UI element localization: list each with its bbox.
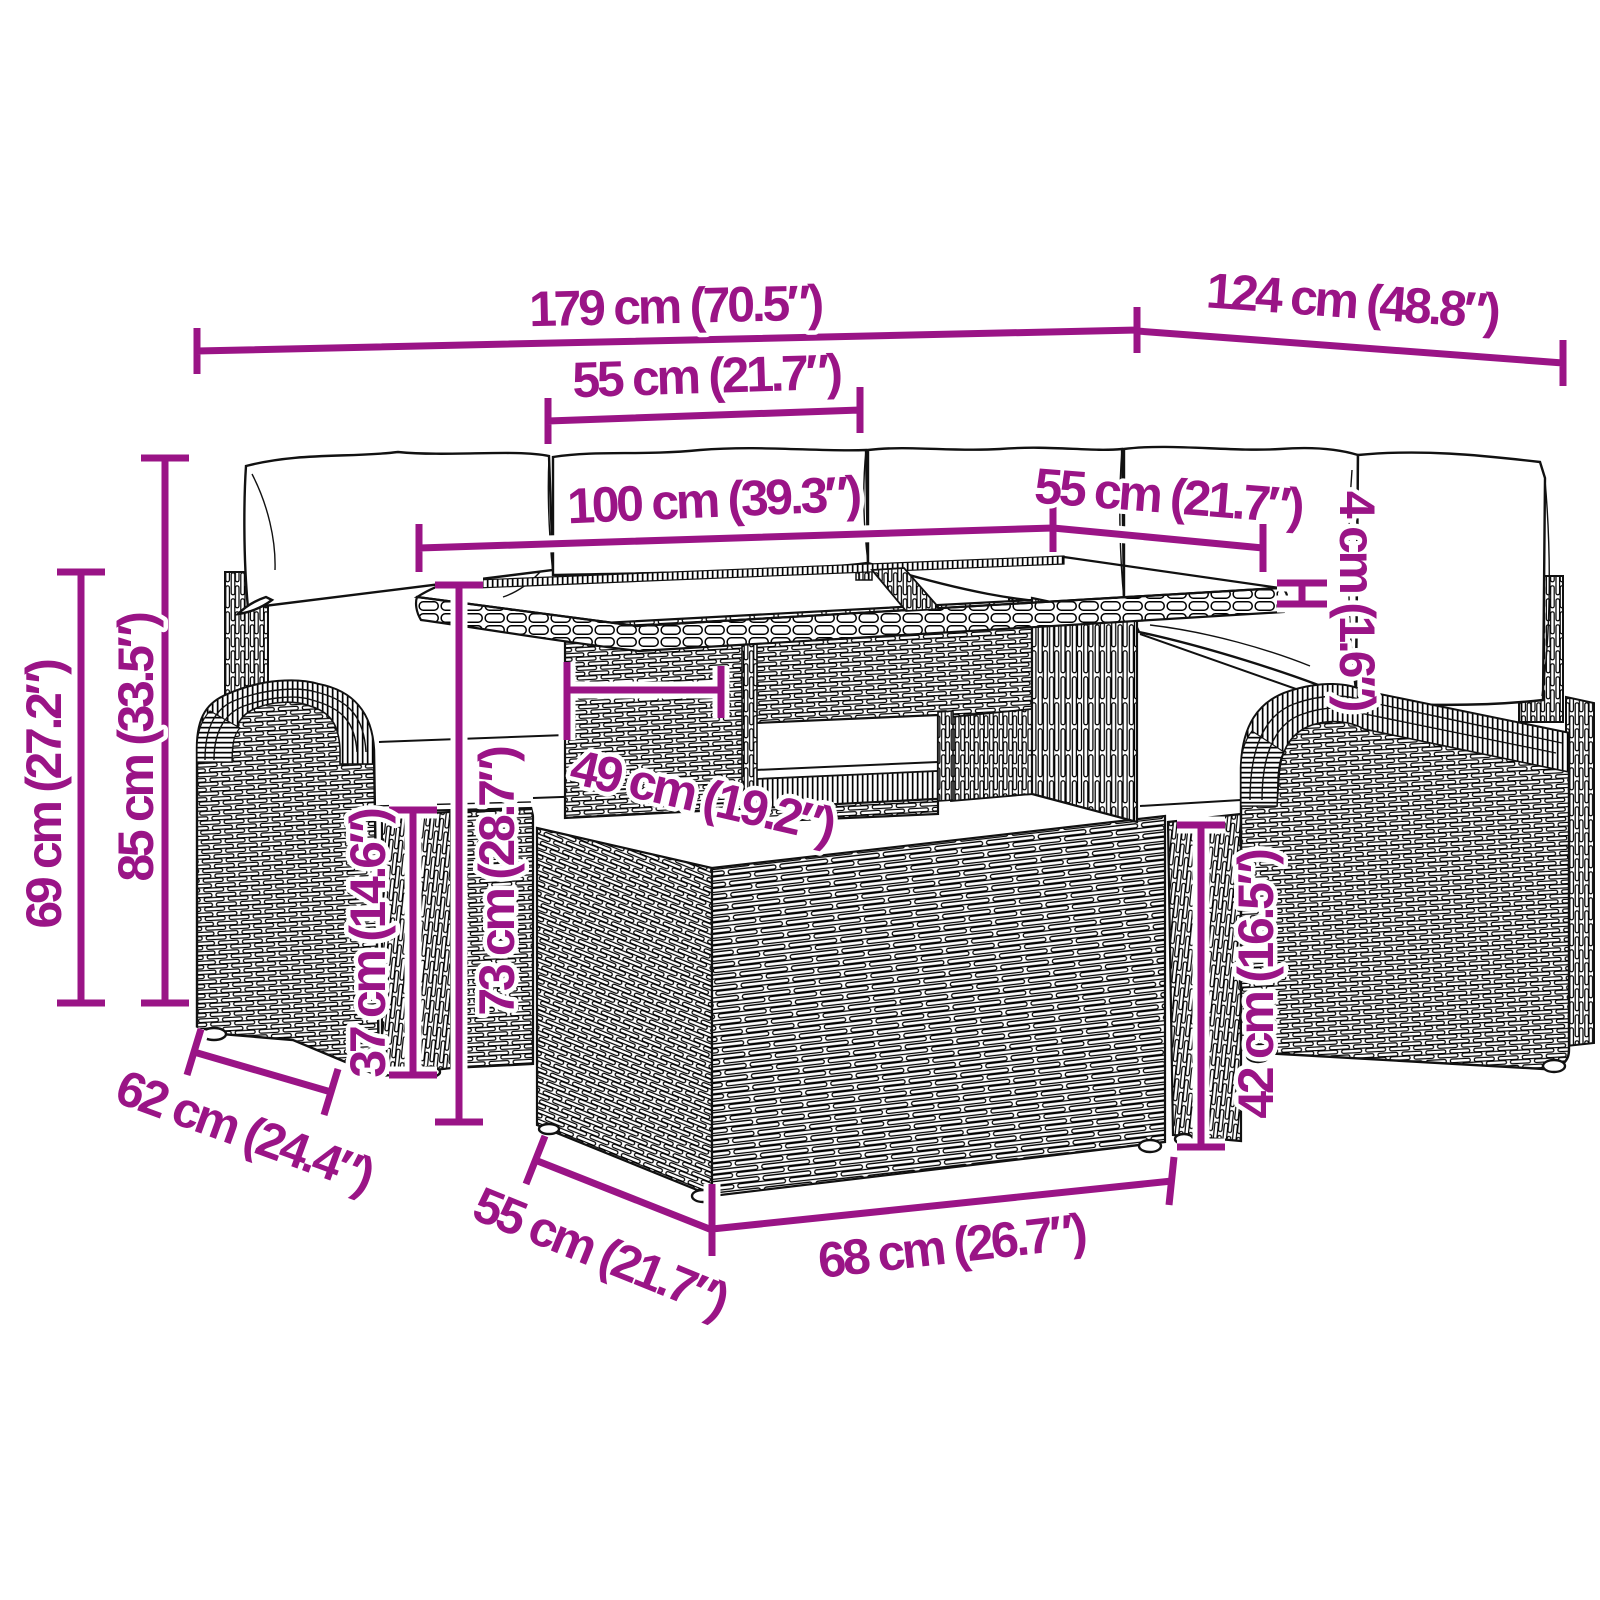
svg-text:37 cm (14.6″): 37 cm (14.6″) bbox=[340, 809, 396, 1078]
svg-text:69 cm (27.2″): 69 cm (27.2″) bbox=[16, 660, 72, 929]
svg-text:4 cm (1.6″): 4 cm (1.6″) bbox=[1329, 491, 1385, 711]
svg-text:42 cm (16.5″): 42 cm (16.5″) bbox=[1228, 850, 1284, 1119]
svg-text:85 cm (33.5″): 85 cm (33.5″) bbox=[108, 613, 164, 882]
svg-text:179 cm (70.5″): 179 cm (70.5″) bbox=[528, 275, 823, 338]
svg-text:73 cm (28.7″): 73 cm (28.7″) bbox=[469, 747, 525, 1016]
svg-text:55 cm (21.7″): 55 cm (21.7″) bbox=[572, 344, 843, 408]
